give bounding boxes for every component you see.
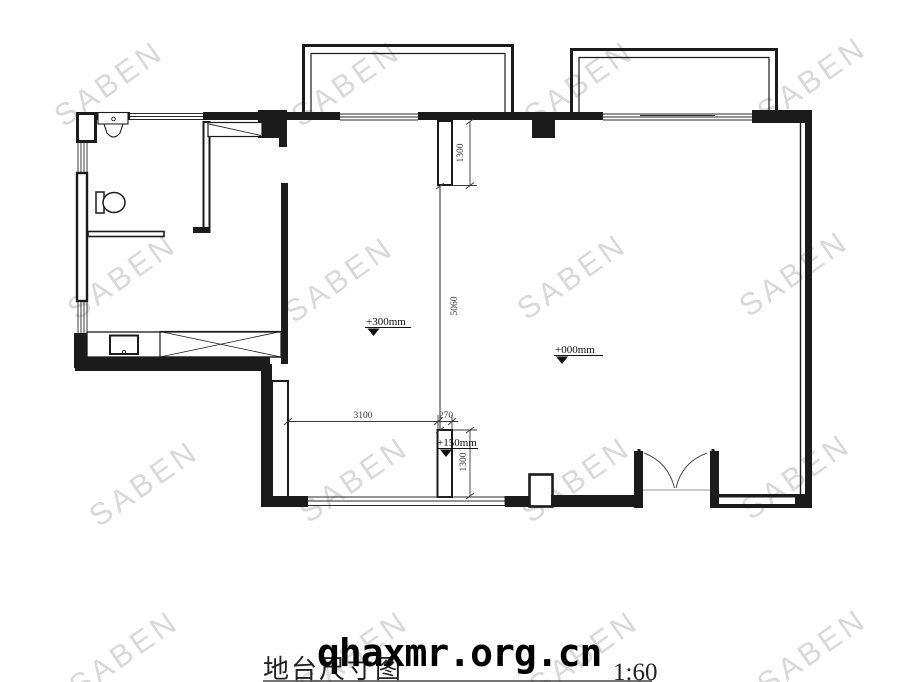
- interior-divider-wall: [281, 183, 288, 364]
- watermark-text: SABEN: [293, 429, 416, 529]
- wall-outer: [805, 112, 812, 508]
- lower-left-room: [75, 332, 308, 508]
- room-right-wall-outer: [261, 364, 272, 507]
- scale-label: 1:60: [613, 659, 657, 682]
- watermark-text: SABEN: [63, 603, 186, 682]
- level-triangle-icon: [556, 357, 568, 365]
- watermark-text: SABEN: [735, 426, 858, 526]
- bottom-pier: [530, 475, 553, 507]
- window-band-left-upper: [78, 143, 87, 172]
- level-triangle-icon: [368, 329, 380, 337]
- dim-label-270: 270: [439, 411, 454, 421]
- level-label: +300mm: [366, 316, 406, 328]
- wall-segment: [418, 112, 532, 120]
- door-swing-arc-left: [644, 453, 675, 488]
- bathroom: [88, 113, 262, 237]
- watermark-text: SABEN: [751, 601, 874, 682]
- counter-sink: [110, 336, 138, 355]
- window-band-left-bay: [340, 114, 418, 120]
- room-bottom-wall: [75, 357, 270, 371]
- window-band-top-bathroom: [130, 114, 203, 120]
- wall-segment: [555, 112, 603, 120]
- window-band-right-bay: [603, 114, 752, 120]
- door-leaf-left: [638, 449, 641, 488]
- wall-cavity-top-line: [719, 494, 812, 498]
- level-label: +150mm: [437, 437, 477, 449]
- room-bottom-corner: [261, 496, 308, 507]
- door-swing-arc-right: [676, 453, 707, 488]
- sink-icon: [98, 113, 128, 138]
- level-marker-main-floor: +000mm: [554, 344, 603, 364]
- dim-label-5060: 5060: [450, 296, 460, 315]
- bathroom-partition-wall: [88, 232, 164, 237]
- toilet-icon: [96, 192, 125, 213]
- bathroom-sliding-door: [208, 123, 262, 137]
- wall-segment: [551, 495, 635, 507]
- corner-column: [78, 114, 96, 142]
- level-marker-platform: +300mm: [365, 316, 411, 336]
- left-wall: [74, 114, 96, 369]
- level-label: +000mm: [555, 344, 595, 356]
- room-right-wall-cavity: [272, 381, 288, 506]
- floor-plan-drawing: SABEN SABEN SABEN SABEN SABEN SABEN SABE…: [0, 0, 910, 682]
- wall-pier: [532, 112, 555, 138]
- dim-label-3100: 3100: [354, 411, 373, 421]
- wall-segment: [752, 110, 812, 123]
- wall-cavity-bottom-line: [719, 504, 812, 508]
- sink-basin: [104, 124, 123, 137]
- dim-label-top-1300: 1300: [456, 143, 466, 162]
- title-block: 地台尺寸图 1:60 qhaxmr.org.cn: [263, 631, 657, 682]
- watermark-text: SABEN: [278, 229, 401, 329]
- watermark-text: SABEN: [733, 223, 856, 323]
- wall-segment: [77, 173, 87, 301]
- dim-label-bottom-1300: 1300: [459, 452, 469, 471]
- toilet-bowl: [103, 193, 125, 213]
- sink-faucet: [112, 117, 116, 121]
- entry-door: [634, 449, 719, 508]
- bathroom-right-wall-foot: [193, 227, 210, 233]
- strip-upper-stub: [438, 121, 452, 185]
- wall-pier-nub: [279, 138, 287, 147]
- floor-plan-page: SABEN SABEN SABEN SABEN SABEN SABEN SABE…: [0, 0, 910, 682]
- website-watermark: qhaxmr.org.cn: [317, 631, 601, 675]
- watermark-text: SABEN: [83, 433, 206, 533]
- door-leaf-right: [712, 449, 715, 488]
- bathroom-right-wall: [204, 122, 210, 232]
- watermark-text: SABEN: [511, 226, 634, 326]
